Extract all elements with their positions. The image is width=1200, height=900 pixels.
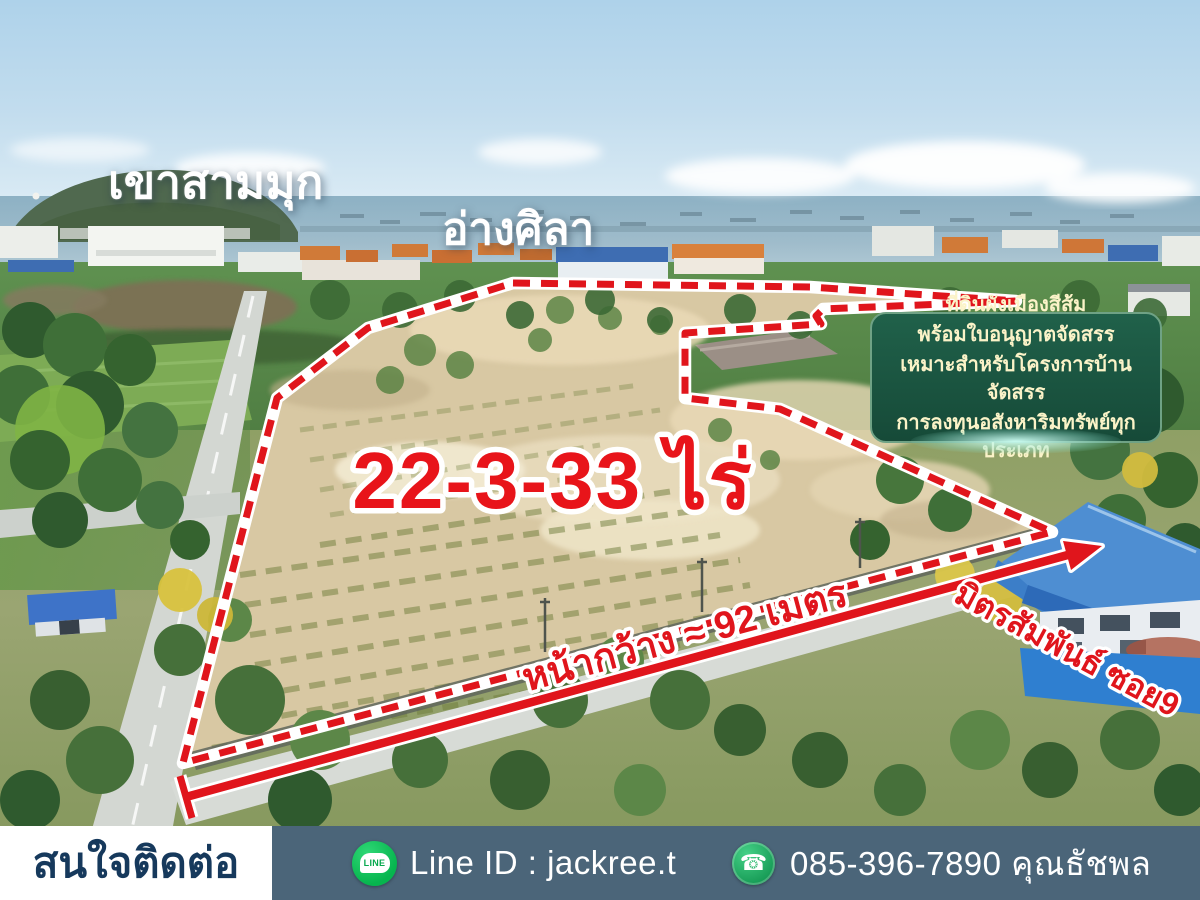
- info-line-1: ที่ดินผังเมืองสีส้ม: [872, 291, 1160, 319]
- info-box-glow: [911, 428, 1121, 454]
- phone-glyph: ☎: [740, 853, 767, 875]
- line-id-text: Line ID : jackree.t: [410, 826, 676, 900]
- bay-name-label: อ่างศิลา: [442, 194, 594, 264]
- land-ad-image: 22-3-33 ไร่ หน้ากว้าง ≈ 92 เมตร มิตรสัมพ…: [0, 0, 1200, 900]
- coast-buildings: [0, 226, 1200, 280]
- blue-shed: [27, 589, 118, 637]
- phone-number-text: 085-396-7890 คุณธัชพล: [790, 826, 1151, 900]
- area-size-label: 22-3-33 ไร่: [352, 434, 753, 525]
- oyster-rafts: [300, 210, 1200, 232]
- info-line-3: เหมาะสำหรับโครงการบ้านจัดสรร: [872, 351, 1160, 407]
- hill-name-label: เขาสามมุก: [108, 146, 323, 219]
- contact-label: สนใจติดต่อ: [0, 826, 272, 900]
- info-line-2: พร้อมใบอนุญาตจัดสรร: [872, 321, 1160, 349]
- line-icon: LINE: [352, 841, 397, 886]
- line-icon-bubble: LINE: [360, 853, 390, 873]
- property-info-box: ที่ดินผังเมืองสีส้ม พร้อมใบอนุญาตจัดสรร …: [870, 312, 1162, 443]
- contact-footer-bar: สนใจติดต่อ LINE Line ID : jackree.t ☎ 08…: [0, 826, 1200, 900]
- phone-icon: ☎: [732, 842, 775, 885]
